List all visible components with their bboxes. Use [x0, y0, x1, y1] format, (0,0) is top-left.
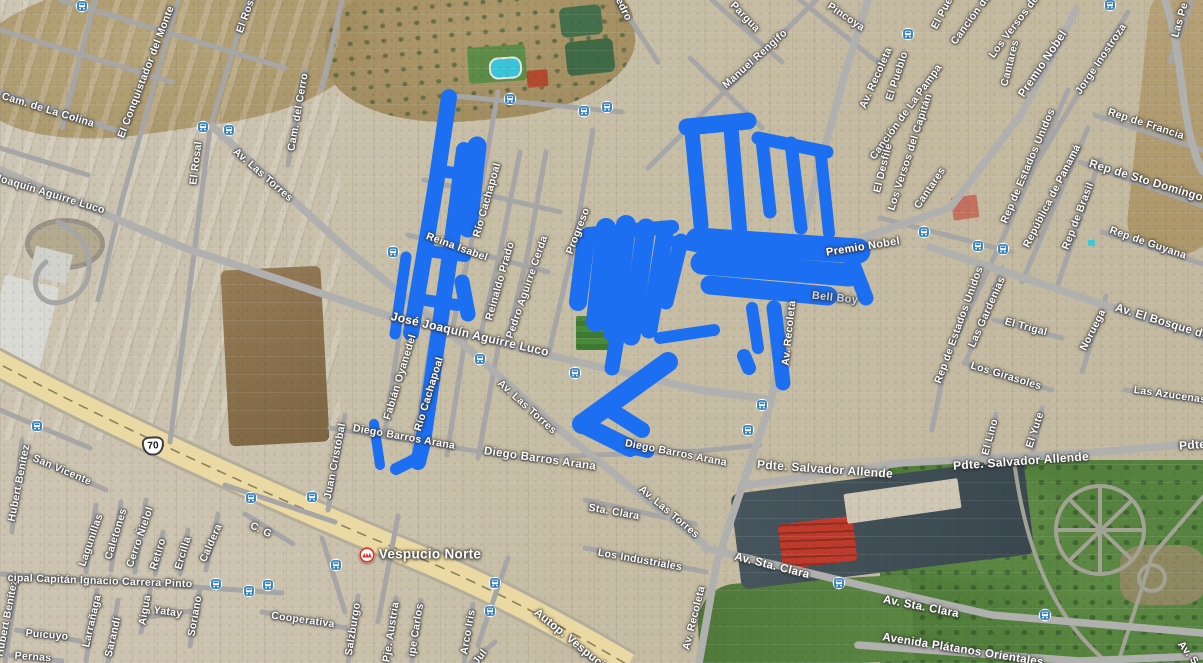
bus-stop-icon[interactable]: [918, 226, 931, 239]
bus-stop-icon[interactable]: [223, 124, 236, 137]
bus-stop-icon[interactable]: [578, 105, 591, 118]
bus-stop-icon[interactable]: [1039, 609, 1052, 622]
bus-stop-icon[interactable]: [833, 577, 846, 590]
bus-stop-icon[interactable]: [742, 424, 755, 437]
bus-stop-icon[interactable]: [210, 578, 223, 591]
bus-stop-icon[interactable]: [997, 243, 1010, 256]
metro-station-icon[interactable]: [359, 547, 376, 564]
bus-stop-icon[interactable]: [484, 605, 497, 618]
bus-stop-icon[interactable]: [262, 579, 275, 592]
bus-stop-icon[interactable]: [1104, 0, 1117, 12]
bus-stop-icon[interactable]: [972, 240, 985, 253]
bus-stop-icon[interactable]: [76, 0, 89, 13]
bus-stop-icon[interactable]: [504, 93, 517, 106]
bus-stop-icon[interactable]: [387, 246, 400, 259]
bus-stop-icon[interactable]: [306, 491, 319, 504]
map-canvas[interactable]: El Conquistador del MonteCam. de La Coli…: [0, 0, 1203, 663]
bus-stop-icon[interactable]: [902, 28, 915, 41]
bus-stop-icon[interactable]: [245, 492, 258, 505]
bus-stop-icon[interactable]: [489, 577, 502, 590]
bus-stop-icon[interactable]: [474, 353, 487, 366]
route-70-shield: 70: [142, 436, 165, 456]
map-icons-layer: 70 Vespucio Norte: [0, 0, 1203, 663]
metro-station-label: Vespucio Norte: [379, 547, 481, 562]
bus-stop-icon[interactable]: [569, 367, 582, 380]
route-shield-number: 70: [147, 440, 159, 451]
bus-stop-icon[interactable]: [197, 121, 210, 134]
bus-stop-icon[interactable]: [601, 101, 614, 114]
bus-stop-icon[interactable]: [330, 559, 343, 572]
bus-stop-icon[interactable]: [243, 585, 256, 598]
bus-stop-icon[interactable]: [31, 420, 44, 433]
bus-stop-icon[interactable]: [756, 399, 769, 412]
